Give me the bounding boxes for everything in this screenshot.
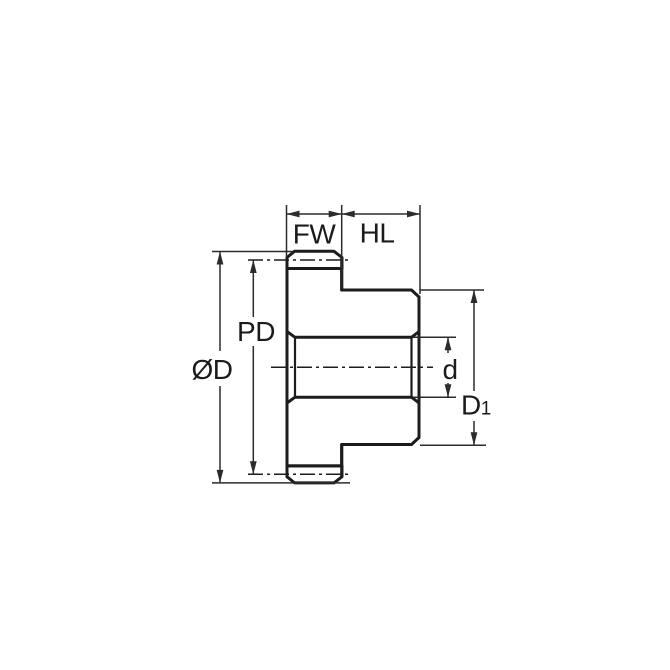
- label-hub-diameter: D1: [461, 390, 491, 421]
- arrow-fw-right: [329, 211, 342, 218]
- gear-body-lower: [287, 397, 419, 466]
- label-hub-diameter-subscript: 1: [481, 399, 491, 420]
- label-hub-diameter-base: D: [461, 390, 481, 421]
- arrow-d1-bottom: [471, 432, 478, 445]
- gear-dimension-diagram: FW HL ØD PD d D1: [0, 0, 670, 670]
- arrow-d1-top: [471, 290, 478, 303]
- label-bore-diameter: d: [442, 354, 457, 385]
- arrow-d-top: [445, 337, 452, 350]
- arrow-d-bottom: [445, 384, 452, 397]
- drawing-canvas: FW HL ØD PD d D1: [0, 0, 670, 670]
- arrow-hl-left: [342, 211, 355, 218]
- label-outside-diameter: ØD: [192, 354, 233, 385]
- arrow-pd-bottom: [250, 461, 257, 474]
- gear-body-upper: [287, 269, 419, 338]
- arrow-od-top: [217, 252, 224, 265]
- arrow-hl-right: [407, 211, 420, 218]
- label-hub-length: HL: [360, 218, 395, 249]
- arrow-od-bottom: [217, 470, 224, 483]
- arrow-fw-left: [287, 211, 300, 218]
- arrow-pd-top: [250, 260, 257, 273]
- gear-cross-section: [248, 251, 433, 483]
- label-face-width: FW: [293, 219, 337, 250]
- label-pitch-diameter: PD: [237, 316, 275, 347]
